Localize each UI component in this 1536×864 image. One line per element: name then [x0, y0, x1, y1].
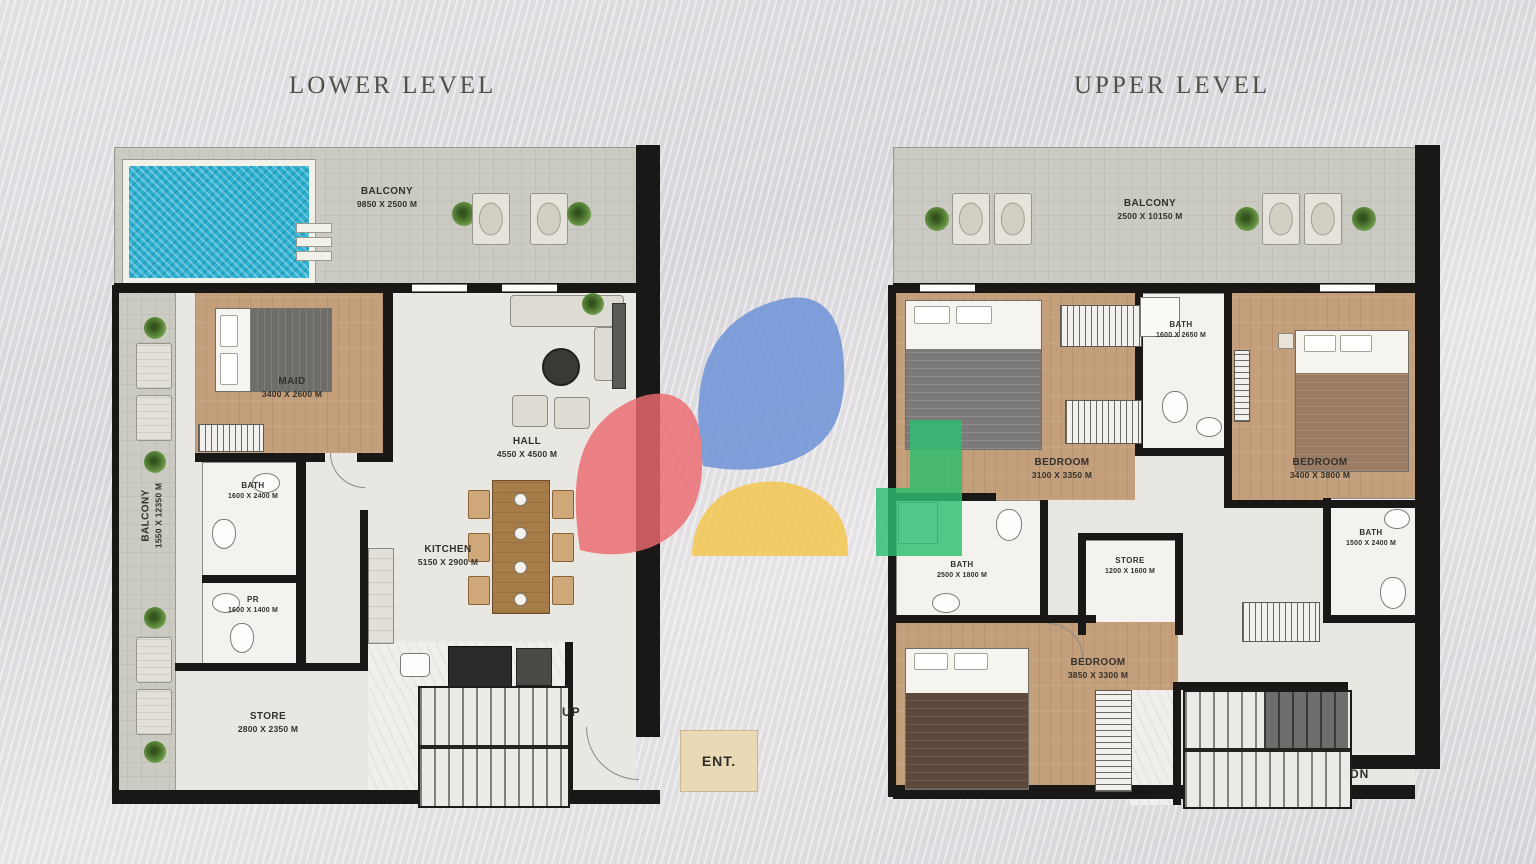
plate-icon [514, 593, 527, 606]
plant-icon [567, 202, 591, 226]
room-label-bath-top: BATH 1600 X 2650 M [1121, 320, 1241, 340]
armchair-icon [512, 395, 548, 427]
room-dims: 9850 X 2500 M [307, 199, 467, 210]
kitchen-sink-icon [400, 653, 430, 677]
room-label-maid: MAID 3400 X 2600 M [212, 375, 372, 400]
sink-icon [932, 593, 960, 613]
window [502, 284, 557, 292]
wall-stairs-top [1173, 682, 1348, 690]
room-name: PR [188, 595, 318, 606]
toilet-icon [230, 623, 254, 653]
oven-icon [516, 648, 552, 686]
lower-level-title: LOWER LEVEL [289, 72, 496, 100]
plant-icon [1352, 207, 1376, 231]
wall-bedroom2-bottom [1228, 500, 1415, 508]
upper-level-title: UPPER LEVEL [1074, 72, 1270, 100]
wall-store-top [175, 663, 360, 671]
room-dims: 1550 X 12350 M [153, 455, 164, 575]
pillow-icon [1340, 335, 1372, 352]
pillow-icon [1304, 335, 1336, 352]
wall-bath-top-bottom [1135, 448, 1228, 456]
room-label-kitchen: KITCHEN 5150 X 2900 M [368, 543, 528, 568]
stair-rail [420, 745, 568, 749]
window [412, 284, 467, 292]
toilet-icon [1380, 577, 1406, 609]
room-label-balcony-side: BALCONY 1550 X 12350 M [140, 455, 165, 575]
room-dims: 3400 X 2600 M [212, 389, 372, 400]
room-name: BALCONY [307, 185, 467, 199]
room-name: BEDROOM [982, 456, 1142, 470]
up-label: UP [562, 705, 581, 719]
logo-house-icon [570, 288, 970, 568]
wall-store-right [1175, 535, 1183, 635]
room-label-bedroom2: BEDROOM 3400 X 3800 M [1240, 456, 1400, 481]
wardrobe-icon [198, 424, 264, 452]
wall-right [1415, 145, 1440, 760]
room-name: BEDROOM [1240, 456, 1400, 470]
room-dims: 2500 X 1800 M [897, 571, 1027, 580]
room-name: KITCHEN [368, 543, 528, 557]
bed-icon [905, 648, 1029, 790]
wall-maid-right [383, 293, 393, 462]
toilet-icon [212, 519, 236, 549]
staircase-upper-flight [1264, 692, 1348, 748]
wall-stairs-left [1173, 682, 1181, 805]
stair-rail [1185, 748, 1350, 752]
wall-bath-pr-divider [202, 575, 306, 583]
window [1320, 284, 1375, 292]
wall-maid-bottom [195, 453, 325, 462]
room-dims: 3400 X 3800 M [1240, 470, 1400, 481]
balcony-chair [472, 193, 510, 245]
room-name: BATH [1121, 320, 1241, 331]
dining-chair-icon [552, 576, 574, 605]
room-name: STORE [188, 710, 348, 724]
room-label-balcony: BALCONY 2500 X 10150 M [1070, 197, 1230, 222]
wardrobe-icon [1065, 400, 1142, 444]
stove-icon [448, 646, 512, 688]
bed-icon [1295, 330, 1409, 472]
wall-store-top [1078, 533, 1183, 540]
pool-ladder-step [296, 251, 332, 261]
room-dims: 2800 X 2350 M [188, 724, 348, 735]
room-name: MAID [212, 375, 372, 389]
room-label-store: STORE 1200 X 1600 M [1065, 556, 1195, 576]
room-label-bath: BATH 1600 X 2400 M [188, 481, 318, 501]
entrance-pad: ENT. [680, 730, 758, 792]
plate-icon [514, 493, 527, 506]
sink-icon [1384, 509, 1410, 529]
down-label: DN [1350, 767, 1369, 781]
room-label-bedroom3: BEDROOM 3850 X 3300 M [1018, 656, 1178, 681]
wall-kitchen-left [360, 510, 368, 671]
wardrobe-icon [1234, 350, 1250, 422]
store-floor [1085, 540, 1177, 634]
brand-watermark-logo [570, 288, 970, 568]
room-label-store: STORE 2800 X 2350 M [188, 710, 348, 735]
wall-bath-right-left [1323, 498, 1331, 620]
wardrobe-icon [1242, 602, 1320, 642]
wall-bottom [112, 790, 660, 804]
wall-bath-mid-right [1040, 500, 1048, 622]
lounge-chair [136, 637, 172, 683]
wall-bedroom3-top [896, 615, 1096, 623]
pillow-icon [914, 653, 948, 670]
balcony-chair [1304, 193, 1342, 245]
closet-icon [1095, 690, 1132, 792]
balcony-chair [530, 193, 568, 245]
plant-icon [144, 607, 166, 629]
balcony-chair [1262, 193, 1300, 245]
room-name: BALCONY [1070, 197, 1230, 211]
lounge-chair [136, 395, 172, 441]
room-dims: 1600 X 2650 M [1121, 331, 1241, 340]
staircase-up [418, 686, 570, 808]
toilet-icon [996, 509, 1022, 541]
pillow-icon [954, 653, 988, 670]
side-table-icon [1278, 333, 1294, 349]
stair-landing-floor [368, 688, 420, 792]
wall-store-left [1078, 535, 1086, 635]
dining-chair-icon [468, 576, 490, 605]
plant-icon [144, 741, 166, 763]
plate-icon [514, 527, 527, 540]
blanket-icon [906, 693, 1028, 789]
room-label-bath-right: BATH 1500 X 2400 M [1306, 528, 1436, 548]
room-dims: 1600 X 1400 M [188, 606, 318, 615]
pool-ladder-step [296, 223, 332, 233]
upper-level-plan: BALCONY 2500 X 10150 M BATH 1600 X 2650 … [890, 145, 1440, 807]
toilet-icon [1162, 391, 1188, 423]
room-dims: 3100 X 3350 M [982, 470, 1142, 481]
room-dims: 5150 X 2900 M [368, 557, 528, 568]
dining-chair-icon [468, 490, 490, 519]
lounge-chair [136, 689, 172, 735]
balcony-chair [994, 193, 1032, 245]
pool-ladder-step [296, 237, 332, 247]
pool [123, 160, 315, 284]
plant-icon [925, 207, 949, 231]
wall-top-interior [114, 283, 637, 293]
room-label-balcony-top: BALCONY 9850 X 2500 M [307, 185, 467, 210]
room-label-bedroom1: BEDROOM 3100 X 3350 M [982, 456, 1142, 481]
room-dims: 1600 X 2400 M [188, 492, 318, 501]
wall-left [112, 285, 119, 790]
room-dims: 1200 X 1600 M [1065, 567, 1195, 576]
lounge-chair [136, 343, 172, 389]
room-dims: 2500 X 10150 M [1070, 211, 1230, 222]
room-dims: 1500 X 2400 M [1306, 539, 1436, 548]
wall-bath-right-bottom [1323, 615, 1415, 623]
room-name: BALCONY [140, 455, 154, 575]
room-name: STORE [1065, 556, 1195, 567]
pillow-icon [220, 315, 238, 347]
room-name: BATH [188, 481, 318, 492]
staircase-down [1183, 690, 1352, 809]
room-dims: 3850 X 3300 M [1018, 670, 1178, 681]
plant-icon [1235, 207, 1259, 231]
plant-icon [144, 317, 166, 339]
room-label-pr: PR 1600 X 1400 M [188, 595, 318, 615]
room-name: BEDROOM [1018, 656, 1178, 670]
balcony-chair [952, 193, 990, 245]
entrance-label: ENT. [702, 753, 736, 769]
room-name: BATH [1306, 528, 1436, 539]
sink-icon [1196, 417, 1222, 437]
